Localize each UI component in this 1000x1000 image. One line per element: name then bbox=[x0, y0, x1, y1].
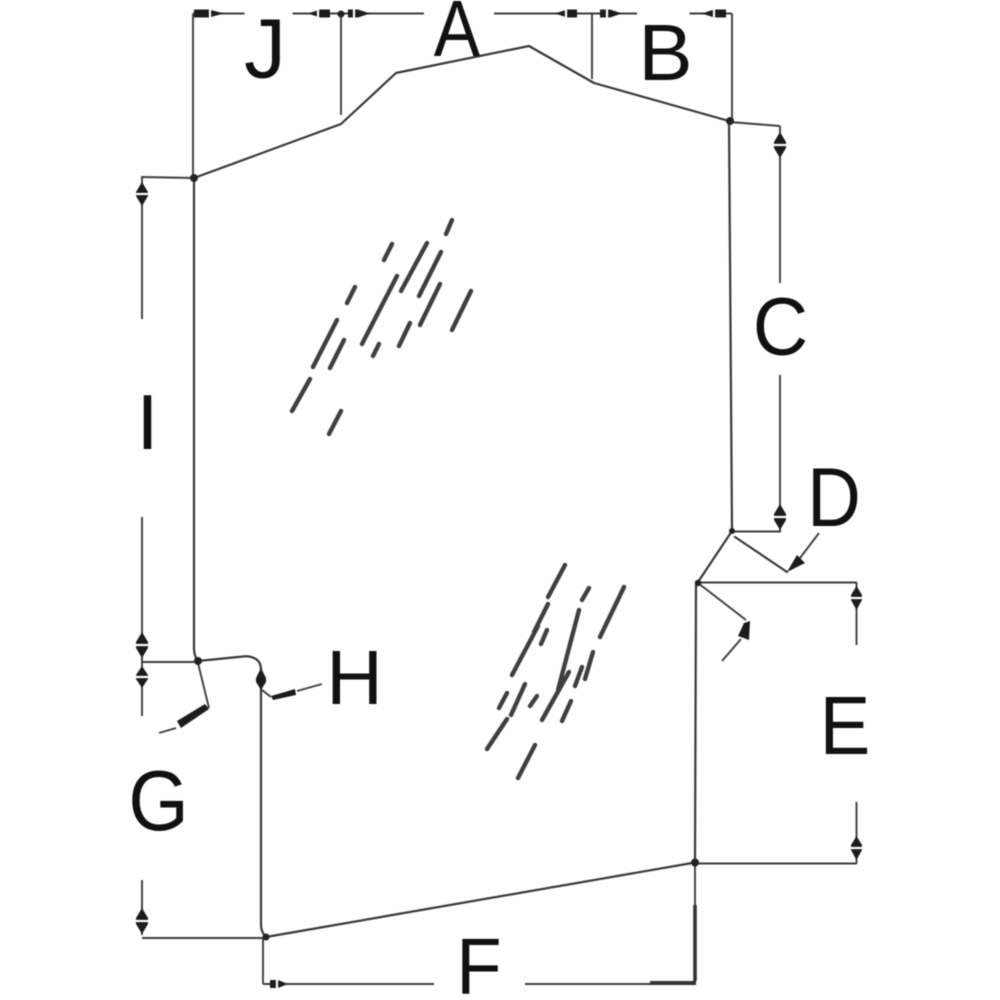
svg-text:B: B bbox=[638, 9, 692, 98]
svg-text:J: J bbox=[244, 1, 286, 95]
svg-text:A: A bbox=[434, 0, 480, 73]
svg-text:F: F bbox=[456, 923, 501, 1000]
svg-text:C: C bbox=[753, 280, 808, 372]
svg-text:D: D bbox=[807, 451, 861, 544]
svg-text:H: H bbox=[326, 636, 383, 721]
svg-text:G: G bbox=[128, 754, 188, 849]
svg-text:I: I bbox=[136, 378, 158, 466]
svg-text:E: E bbox=[820, 679, 871, 772]
